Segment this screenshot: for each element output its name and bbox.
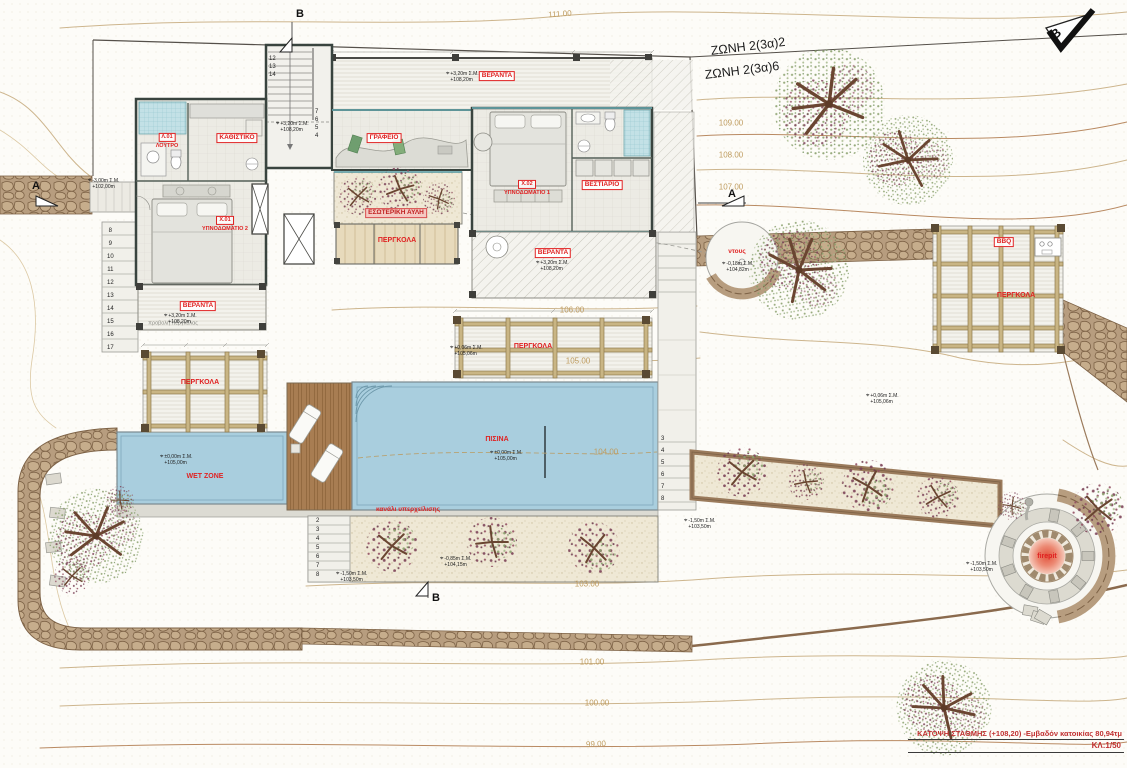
level-marker-icon: ⌖ [684,518,687,524]
zone-label-a: ΖΩΝΗ 2(3α)2 [710,35,786,58]
elevation-marker: ⌖±0,00m Σ.Μ.+105,00m [490,450,522,462]
elevation-marker: ⌖-1,50m Σ.Μ.+103,50m [966,561,997,573]
level-marker-icon: ⌖ [966,561,969,567]
contour-label: 108.00 [719,151,743,160]
firepit-label: firepit [1037,553,1056,561]
contour-label: 101.00 [580,658,604,667]
elevation-marker: ⌖-0,18m Σ.Μ.+104,82m [722,261,753,273]
contour-label: 109.00 [719,119,743,128]
elevation-marker: ⌖+3,20m Σ.Μ.+108,20m [276,121,309,133]
bath-name: ΛΟΥΤΡΟ [156,143,179,150]
elevation-marker: ⌖+3,20m Σ.Μ.+108,20m [164,313,197,325]
stair-numbers-hall-lower: 7654 [315,108,318,140]
elevation-marker: ⌖±0,00m Σ.Μ.+105,00m [160,454,192,466]
level-marker-icon: ⌖ [722,261,725,267]
contour-label: 99.00 [586,739,606,749]
title-block: ΚΑΤΟΨΗ ΣΤΑΘΜΗΣ (+108,20) -Εμβαδόν κατοικ… [908,729,1124,753]
contour-label: 104.00 [594,448,618,457]
pergola-label: ΠΕΡΓΚΟΛΑ [997,292,1035,300]
elevation-marker: ⌖+3,20m Σ.Μ.+108,20m [446,71,479,83]
level-marker-icon: ⌖ [276,121,279,127]
level-marker-icon: ⌖ [490,450,493,456]
bedroom2-label: Χ.01 ΥΠΝΟΔΩΜΑΤΙΟ 2 [202,216,248,232]
site-plan-sheet: ΖΩΝΗ 2(3α)2 ΖΩΝΗ 2(3α)6 111.00 109.00 10… [0,0,1127,768]
wardrobe-label: ΒΕΣΤΙΑΡΙΟ [582,180,623,190]
contour-label: 111.00 [548,9,572,20]
overflow-channel-label: κανάλι υπερχείλισης [376,506,440,514]
level-marker-icon: ⌖ [866,393,869,399]
level-marker-icon: ⌖ [164,313,167,319]
section-marker-right: A [728,188,736,200]
elevation-marker: ⌖-1,50m Σ.Μ.+103,50m [336,571,367,583]
living-label: ΚΑΘΙΣΤΙΚΟ [216,133,257,143]
stair-numbers-garden: 2345678 [316,517,319,580]
bath-code: Λ.01 [158,133,175,142]
veranda-top-label: ΒΕΡΑΝΤΑ [479,71,515,81]
level-marker-icon: ⌖ [450,345,453,351]
level-marker-icon: ⌖ [336,571,339,577]
contour-label: 100.00 [585,699,609,708]
sheet-title: ΚΑΤΟΨΗ ΣΤΑΘΜΗΣ (+108,20) -Εμβαδόν κατοικ… [908,729,1124,740]
contour-label: 106.00 [560,306,584,315]
pergola-label: ΠΕΡΓΚΟΛΑ [514,343,552,351]
elevation-marker: ⌖+0,06m Σ.Μ.+105,06m [450,345,483,357]
veranda-left-label: ΒΕΡΑΝΤΑ [180,301,216,311]
stair-numbers-pool: 345678 [661,433,664,505]
stair-numbers-hall-upper: 121314 [269,55,276,79]
level-marker-icon: ⌖ [536,260,539,266]
level-marker-icon: ⌖ [160,454,163,460]
veranda-right-label: ΒΕΡΑΝΤΑ [535,248,571,258]
shower-label: ντους [728,248,745,256]
section-marker-top: B [296,8,304,20]
bbq-label: BBQ [994,237,1014,247]
contour-label: 105.00 [566,357,590,366]
wet-zone-label: WET ZONE [187,473,224,481]
bedroom2-name: ΥΠΝΟΔΩΜΑΤΙΟ 2 [202,226,248,233]
pergola-label: ΠΕΡΓΚΟΛΑ [181,379,219,387]
pergola-label: ΠΕΡΓΚΟΛΑ [378,237,416,245]
bedroom1-name: ΥΠΝΟΔΩΜΑΤΙΟ 1 [504,190,550,197]
level-marker-icon: ⌖ [440,556,443,562]
elevation-marker: ⌖-3,00m Σ.Μ.+102,00m [88,178,119,190]
bedroom1-code: Χ.02 [518,180,535,189]
level-marker-icon: ⌖ [88,178,91,184]
section-marker-bottom: B [432,592,440,604]
section-marker-left: A [32,180,40,192]
bedroom2-code: Χ.01 [216,216,233,225]
office-label: ΓΡΑΦΕΙΟ [367,133,402,143]
stair-numbers-west: 891011121314151617 [107,225,114,355]
elevation-marker: ⌖+3,20m Σ.Μ.+108,20m [536,260,569,272]
sheet-scale: ΚΛ:1/50 [908,740,1124,753]
courtyard-label: ΕΣΩΤΕΡΙΚΗ ΑΥΛΗ [365,208,427,218]
zone-label-b: ΖΩΝΗ 2(3α)6 [704,59,780,82]
contour-label: 103.00 [575,580,599,589]
elevation-marker: ⌖-0,85m Σ.Μ.+104,15m [440,556,471,568]
bedroom1-label: Χ.02 ΥΠΝΟΔΩΜΑΤΙΟ 1 [504,180,550,196]
annotation-layer: ΖΩΝΗ 2(3α)2 ΖΩΝΗ 2(3α)6 111.00 109.00 10… [0,0,1127,768]
north-arrow-icon: B [1030,4,1115,69]
pool-label: ΠΙΣΙΝΑ [485,436,508,444]
elevation-marker: ⌖-1,50m Σ.Μ.+103,50m [684,518,715,530]
elevation-marker: ⌖+0,06m Σ.Μ.+105,06m [866,393,899,405]
level-marker-icon: ⌖ [446,71,449,77]
bath-label: Λ.01 ΛΟΥΤΡΟ [156,133,179,149]
